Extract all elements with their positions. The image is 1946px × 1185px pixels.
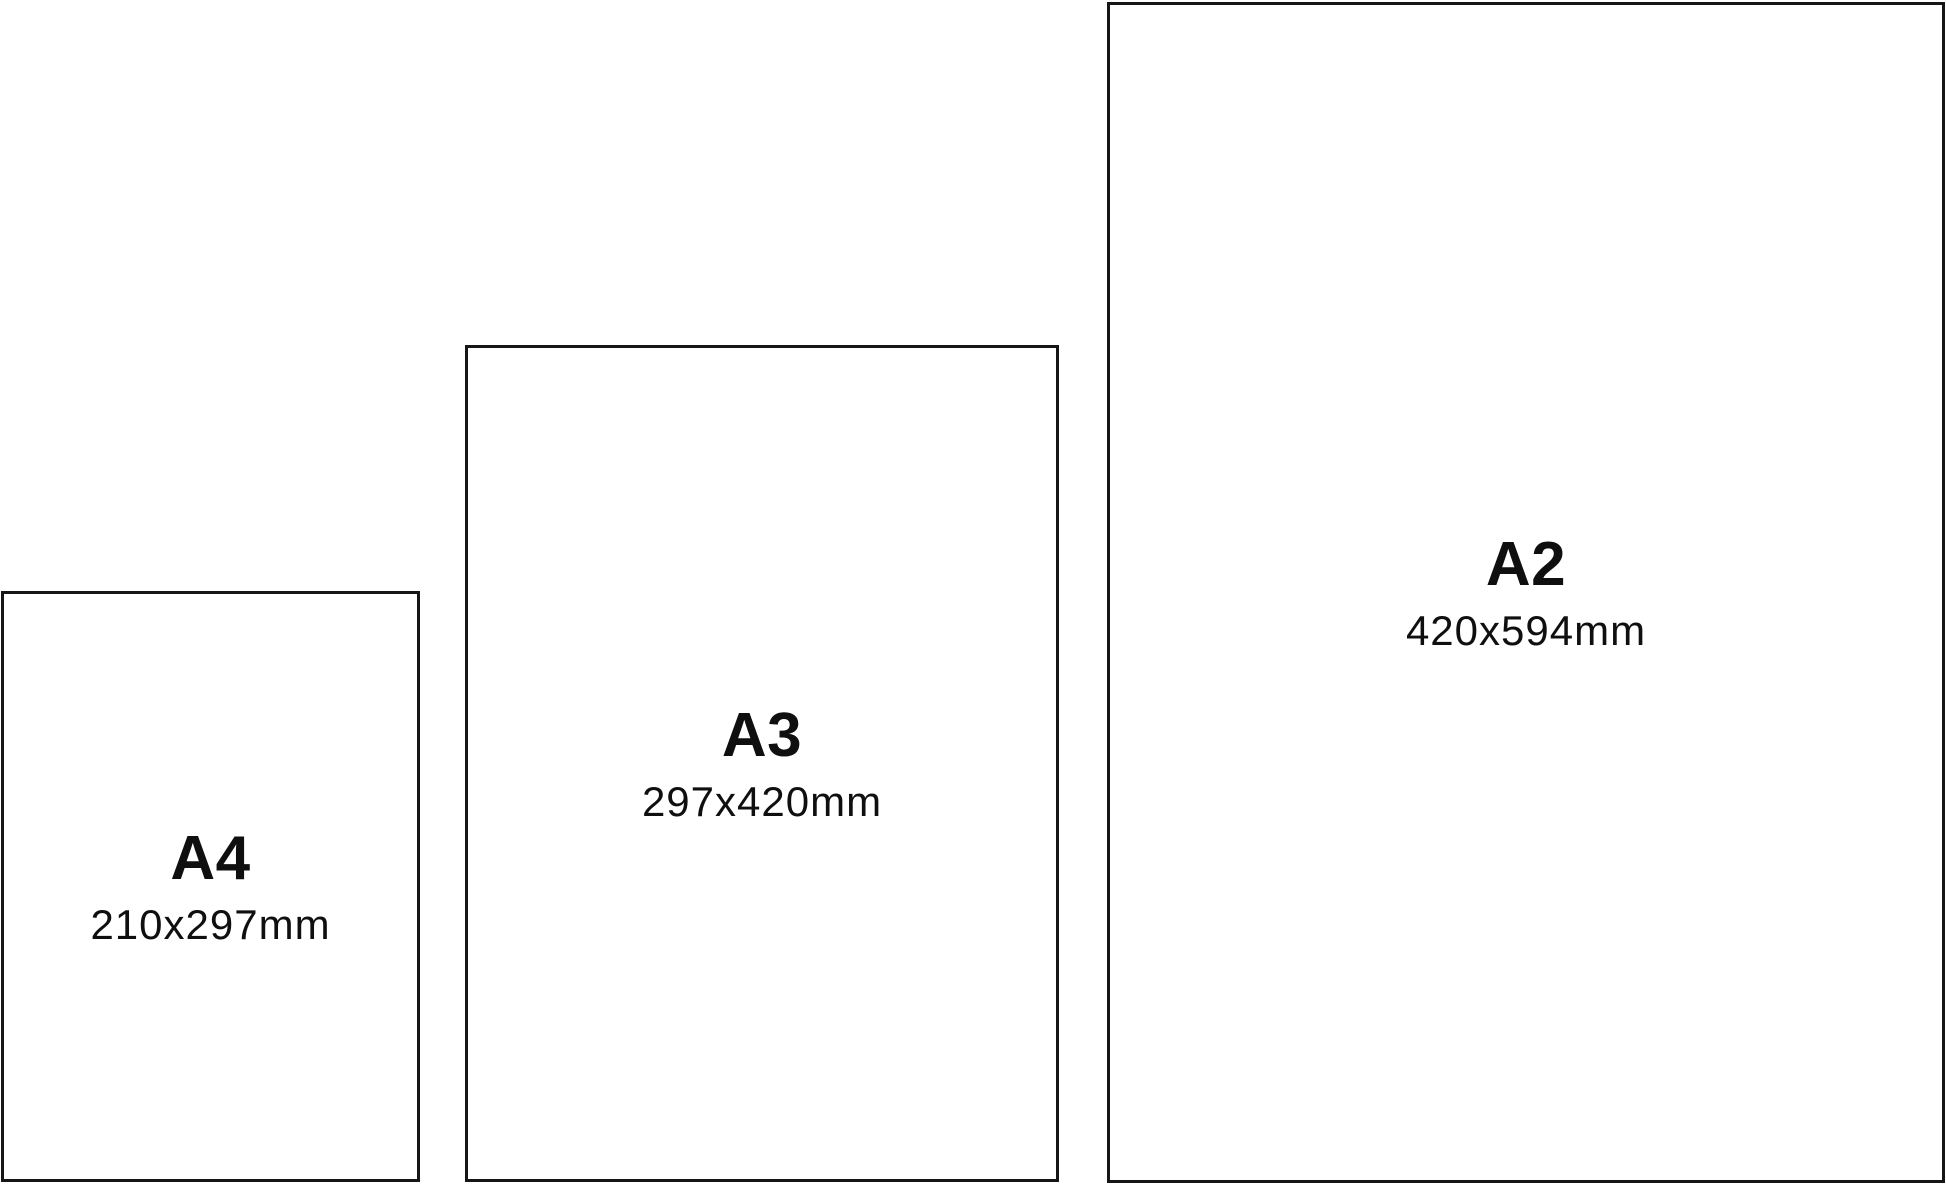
paper-a2-rectangle: A2 420x594mm [1107,2,1945,1183]
paper-a3-name-label: A3 [722,705,802,767]
paper-a4-name-label: A4 [170,828,250,890]
paper-a4-dimensions-label: 210x297mm [90,904,330,946]
paper-a2-dimensions-label: 420x594mm [1406,610,1646,652]
paper-a4-rectangle: A4 210x297mm [1,591,420,1182]
paper-a3-dimensions-label: 297x420mm [642,781,882,823]
paper-a3-rectangle: A3 297x420mm [465,345,1059,1182]
paper-a2-name-label: A2 [1486,534,1566,596]
paper-size-comparison-diagram: A4 210x297mm A3 297x420mm A2 420x594mm [0,0,1946,1185]
